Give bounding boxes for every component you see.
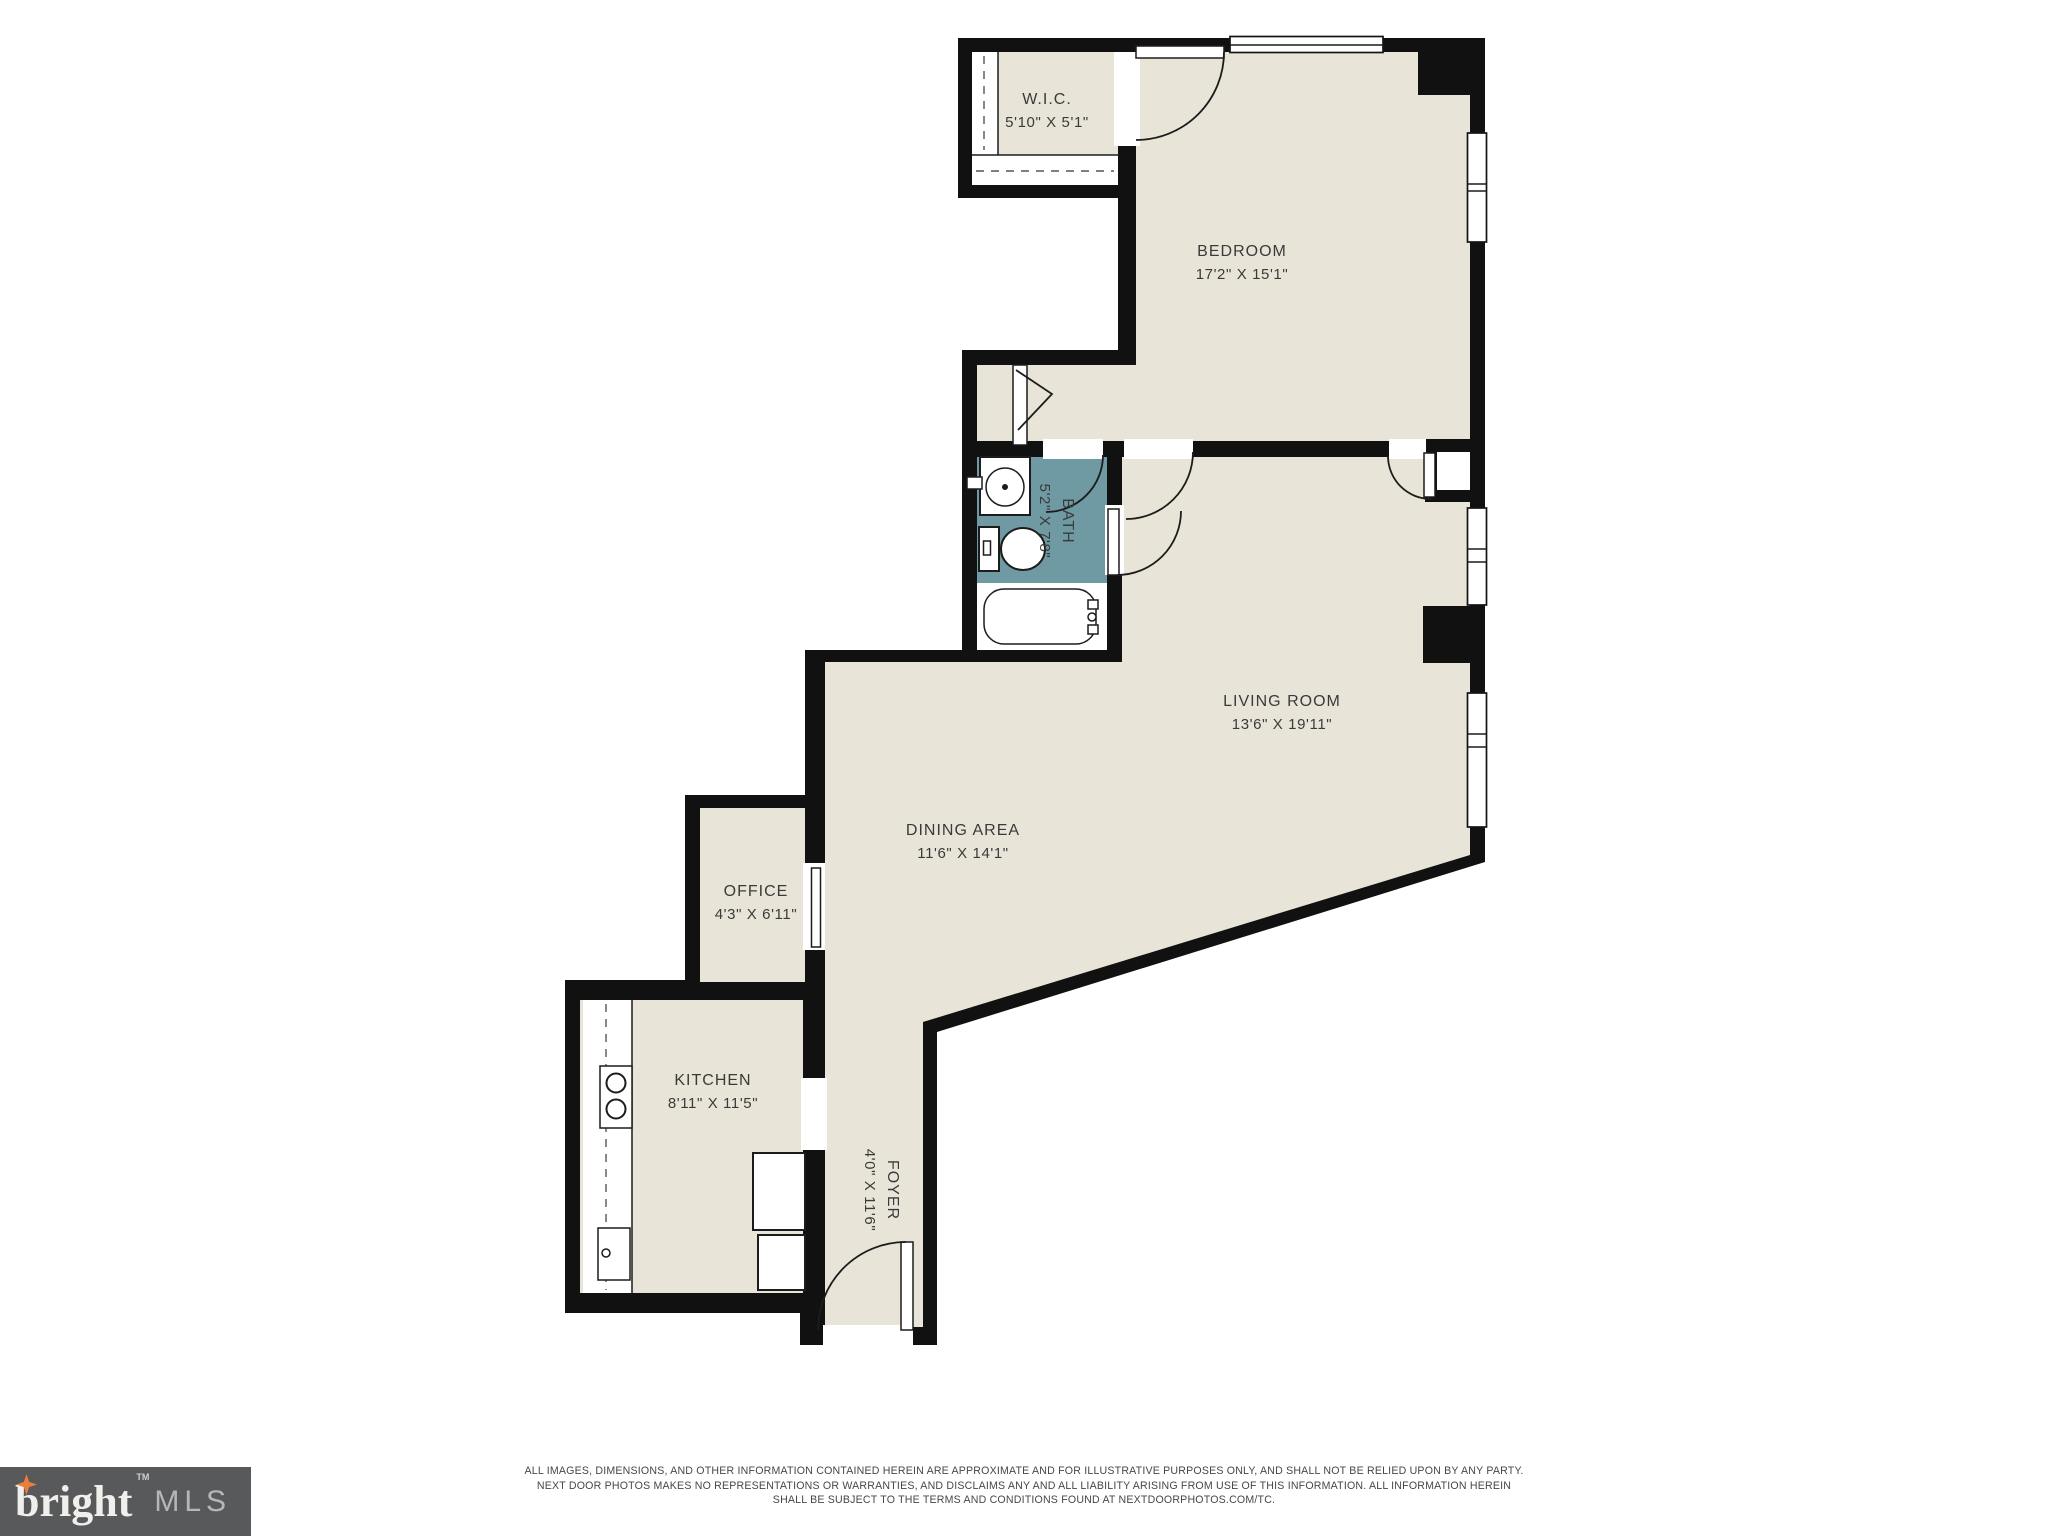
bath-sink-faucet bbox=[967, 477, 982, 489]
room-label-bedroom: BEDROOM 17'2" X 15'1" bbox=[1196, 240, 1289, 286]
toilet-flush bbox=[984, 541, 991, 555]
entry-door-leaf bbox=[901, 1242, 913, 1330]
tub-faucet-bottom bbox=[1088, 625, 1098, 634]
logo-star-icon bbox=[15, 1473, 38, 1496]
bedroom-top-window bbox=[1230, 37, 1383, 53]
wic-door-leaf bbox=[1136, 46, 1224, 58]
room-dims: 5'10" X 5'1" bbox=[1005, 111, 1089, 134]
room-dims: 8'11" X 11'5" bbox=[668, 1092, 758, 1115]
disclaimer-line-1: ALL IMAGES, DIMENSIONS, AND OTHER INFORM… bbox=[0, 1464, 2048, 1479]
room-dims: 5'2" X 7'8" bbox=[1033, 484, 1056, 559]
bedroom-right-window bbox=[1468, 133, 1487, 242]
room-name: OFFICE bbox=[715, 880, 798, 903]
closet-door-leaf bbox=[1424, 453, 1435, 497]
room-label-bath: BATH 5'2" X 7'8" bbox=[1033, 484, 1079, 559]
room-name: LIVING ROOM bbox=[1223, 690, 1341, 713]
refrigerator bbox=[753, 1153, 805, 1230]
logo-trademark: TM bbox=[136, 1473, 149, 1482]
room-dims: 4'0" X 11'6" bbox=[858, 1149, 881, 1232]
room-label-dining: DINING AREA 11'6" X 14'1" bbox=[906, 819, 1020, 865]
office-sliding-door-leaf bbox=[812, 868, 821, 947]
floor-plan-page: W.I.C. 5'10" X 5'1" BEDROOM 17'2" X 15'1… bbox=[0, 0, 2048, 1536]
disclaimer-line-2: NEXT DOOR PHOTOS MAKES NO REPRESENTATION… bbox=[0, 1479, 2048, 1494]
room-label-office: OFFICE 4'3" X 6'11" bbox=[715, 880, 798, 926]
living-right-window-upper bbox=[1468, 508, 1487, 605]
room-name: W.I.C. bbox=[1005, 88, 1089, 111]
room-label-wic: W.I.C. 5'10" X 5'1" bbox=[1005, 88, 1089, 134]
room-label-kitchen: KITCHEN 8'11" X 11'5" bbox=[668, 1069, 758, 1115]
kitchen-sink-faucet bbox=[602, 1249, 610, 1257]
room-name: DINING AREA bbox=[906, 819, 1020, 842]
bedroom-floor bbox=[1136, 52, 1470, 443]
room-name: KITCHEN bbox=[668, 1069, 758, 1092]
stove-burner-1 bbox=[607, 1074, 626, 1093]
disclaimer-text: ALL IMAGES, DIMENSIONS, AND OTHER INFORM… bbox=[0, 1464, 2048, 1508]
room-dims: 17'2" X 15'1" bbox=[1196, 263, 1289, 286]
room-label-foyer: FOYER 4'0" X 11'6" bbox=[858, 1149, 904, 1232]
floor-plan-drawing bbox=[0, 0, 2048, 1536]
bedroom-hall-floor bbox=[977, 365, 1136, 443]
logo-word: bright TM bbox=[15, 1480, 132, 1524]
bathtub bbox=[984, 589, 1096, 644]
living-right-window-lower bbox=[1468, 693, 1487, 827]
disclaimer-line-3: SHALL BE SUBJECT TO THE TERMS AND CONDIT… bbox=[0, 1493, 2048, 1508]
logo-mls: MLS bbox=[154, 1485, 231, 1519]
room-dims: 4'3" X 6'11" bbox=[715, 903, 798, 926]
tub-drain bbox=[1088, 613, 1096, 621]
room-dims: 11'6" X 14'1" bbox=[906, 842, 1020, 865]
room-name: BATH bbox=[1056, 484, 1079, 559]
room-label-living: LIVING ROOM 13'6" X 19'11" bbox=[1223, 690, 1341, 736]
bright-mls-logo: bright TM MLS bbox=[0, 1467, 251, 1536]
room-dims: 13'6" X 19'11" bbox=[1223, 713, 1341, 736]
room-name: FOYER bbox=[881, 1149, 904, 1232]
stove-burner-2 bbox=[607, 1100, 626, 1119]
dishwasher bbox=[758, 1235, 805, 1290]
tub-faucet-top bbox=[1088, 600, 1098, 609]
room-name: BEDROOM bbox=[1196, 240, 1289, 263]
bath-door-leaf bbox=[1108, 509, 1119, 575]
